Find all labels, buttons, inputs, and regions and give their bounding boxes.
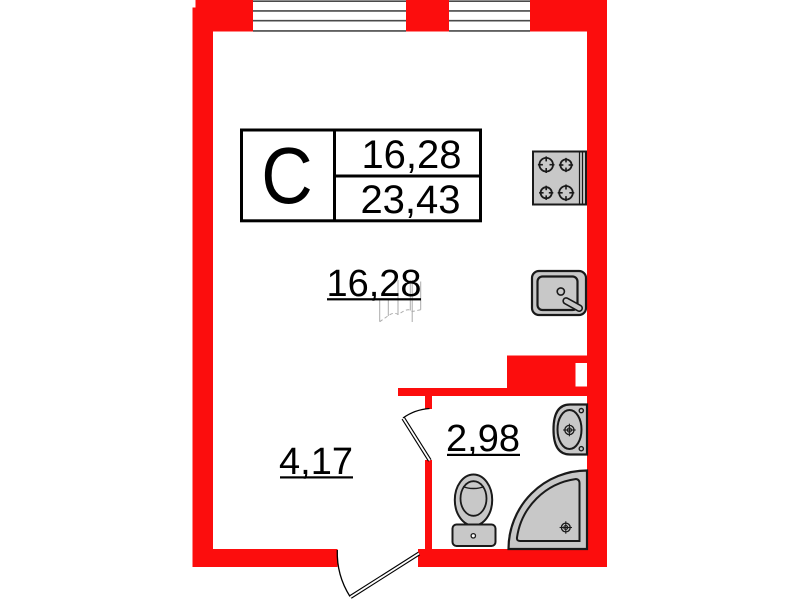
svg-text:23,43: 23,43: [360, 178, 460, 222]
svg-text:С: С: [261, 131, 312, 221]
svg-text:16,28: 16,28: [361, 133, 461, 177]
svg-text:2,98: 2,98: [446, 418, 520, 460]
